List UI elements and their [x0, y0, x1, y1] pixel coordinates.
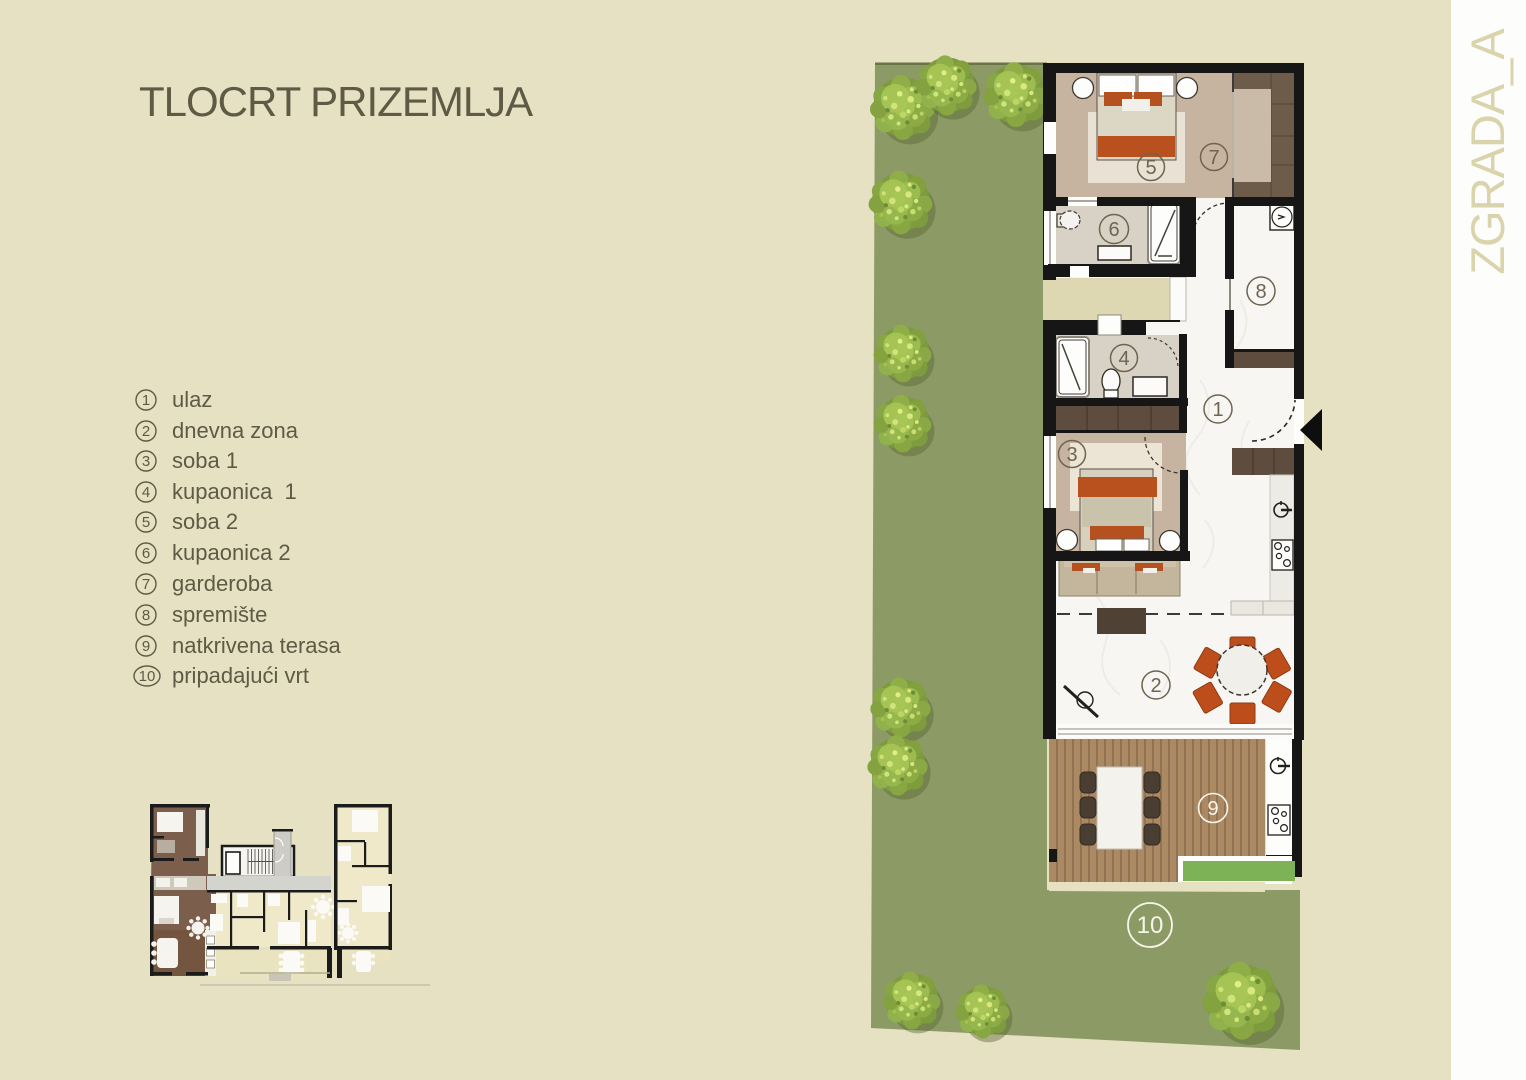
svg-text:spremište: spremište — [172, 602, 267, 627]
svg-text:8: 8 — [1255, 281, 1266, 303]
svg-text:4: 4 — [1118, 348, 1129, 370]
svg-text:ZGRADA_A: ZGRADA_A — [1461, 28, 1514, 275]
svg-text:5: 5 — [1145, 157, 1156, 179]
svg-text:9: 9 — [142, 638, 150, 655]
svg-text:natkrivena terasa: natkrivena terasa — [172, 633, 342, 658]
svg-text:soba 2: soba 2 — [172, 509, 238, 534]
svg-text:kupaonica 1: kupaonica 1 — [172, 479, 297, 504]
svg-text:5: 5 — [142, 514, 150, 531]
svg-text:dnevna zona: dnevna zona — [172, 418, 299, 443]
svg-text:TLOCRT PRIZEMLJA: TLOCRT PRIZEMLJA — [139, 78, 533, 125]
svg-text:3: 3 — [142, 453, 150, 470]
svg-text:9: 9 — [1207, 798, 1218, 820]
svg-text:4: 4 — [142, 484, 150, 501]
svg-text:2: 2 — [142, 423, 150, 440]
svg-text:kupaonica 2: kupaonica 2 — [172, 540, 291, 565]
svg-text:10: 10 — [139, 668, 156, 685]
svg-text:2: 2 — [1150, 675, 1161, 697]
svg-text:8: 8 — [142, 607, 150, 624]
svg-text:7: 7 — [1208, 147, 1219, 169]
svg-text:1: 1 — [142, 392, 150, 409]
svg-text:ulaz: ulaz — [172, 387, 212, 412]
svg-text:3: 3 — [1066, 444, 1077, 466]
svg-text:10: 10 — [1137, 912, 1164, 939]
svg-text:soba 1: soba 1 — [172, 448, 238, 473]
svg-text:1: 1 — [1212, 399, 1223, 421]
svg-text:6: 6 — [142, 545, 150, 562]
svg-text:7: 7 — [142, 576, 150, 593]
svg-text:garderoba: garderoba — [172, 571, 273, 596]
svg-text:pripadajući vrt: pripadajući vrt — [172, 663, 309, 688]
svg-text:6: 6 — [1108, 219, 1119, 241]
